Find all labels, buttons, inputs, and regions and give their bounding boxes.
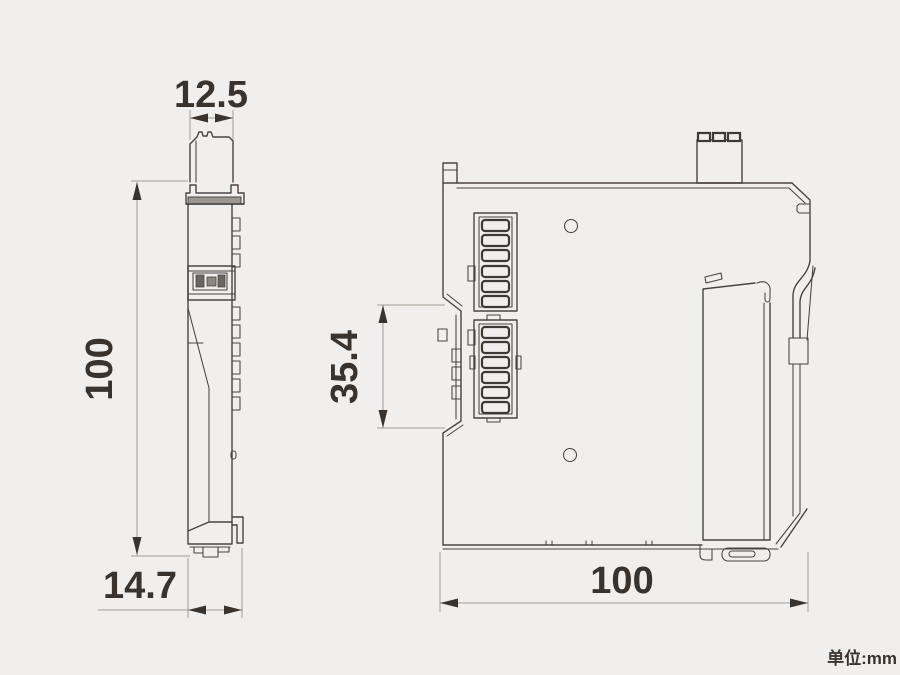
front-body — [186, 204, 244, 531]
side-top-connector — [697, 133, 742, 183]
dim-front-height: 100 — [79, 181, 190, 556]
dim-label-side-groove-height: 35.4 — [324, 330, 366, 404]
side-terminal-block-upper — [468, 213, 517, 311]
dim-label-front-height: 100 — [79, 337, 121, 400]
technical-drawing: 12.5 100 14.7 35.4 — [0, 0, 900, 675]
side-din-groove — [438, 190, 463, 545]
front-bottom-latch — [188, 517, 243, 557]
front-view-drawing — [186, 132, 244, 557]
side-screw-hole-lower — [564, 449, 577, 462]
front-top-connector — [190, 132, 233, 182]
dim-label-side-depth: 100 — [590, 560, 653, 602]
side-view-drawing — [438, 133, 815, 561]
dim-label-front-top-width: 12.5 — [174, 74, 248, 116]
side-cover-panel — [703, 282, 770, 540]
front-mount-bracket — [186, 185, 244, 204]
side-din-clip — [776, 261, 815, 547]
front-bus-connector — [188, 266, 235, 300]
side-terminal-block-lower — [468, 315, 521, 422]
dim-side-groove-height: 35.4 — [324, 305, 445, 428]
dim-front-bottom-width: 14.7 — [98, 548, 243, 618]
unit-label: 单位:mm — [827, 648, 897, 668]
side-screw-hole-upper — [565, 220, 578, 233]
dim-label-front-bottom-width: 14.7 — [103, 565, 177, 607]
side-label-slot — [705, 273, 722, 283]
drawing-canvas: 12.5 100 14.7 35.4 — [0, 0, 900, 675]
dim-front-top-width: 12.5 — [174, 74, 248, 140]
